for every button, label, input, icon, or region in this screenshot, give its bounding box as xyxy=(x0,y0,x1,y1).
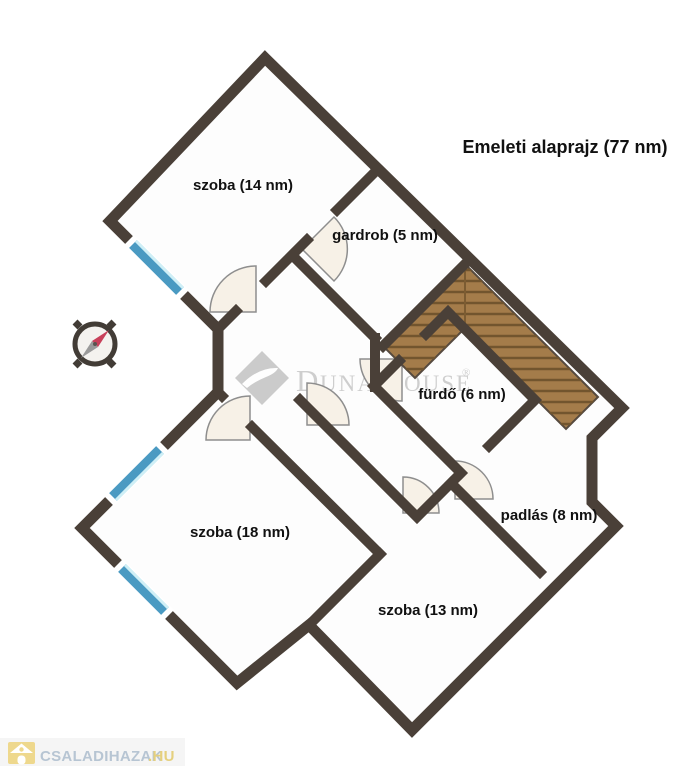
house-icon xyxy=(8,742,35,765)
compass-icon xyxy=(73,320,117,369)
footer-brand-text: CSALADIHAZAK xyxy=(40,748,163,765)
room-label-furdo: fürdő (6 nm) xyxy=(418,386,506,403)
watermark-registered-icon: ® xyxy=(462,367,470,379)
floorplan-page: D UNA H OUSE ® xyxy=(0,0,699,768)
room-label-szoba18: szoba (18 nm) xyxy=(190,524,290,541)
room-label-gardrob: gardrob (5 nm) xyxy=(332,227,438,244)
room-label-szoba14: szoba (14 nm) xyxy=(193,177,293,194)
room-label-padlas: padlás (8 nm) xyxy=(501,507,598,524)
floorplan-canvas: D UNA H OUSE ® xyxy=(0,0,699,768)
footer-brand-tld: .HU xyxy=(148,748,175,765)
page-title: Emeleti alaprajz (77 nm) xyxy=(462,137,667,157)
room-label-szoba13: szoba (13 nm) xyxy=(378,602,478,619)
compass-pivot xyxy=(93,342,97,346)
footer-brand: CSALADIHAZAK .HU xyxy=(0,737,186,767)
